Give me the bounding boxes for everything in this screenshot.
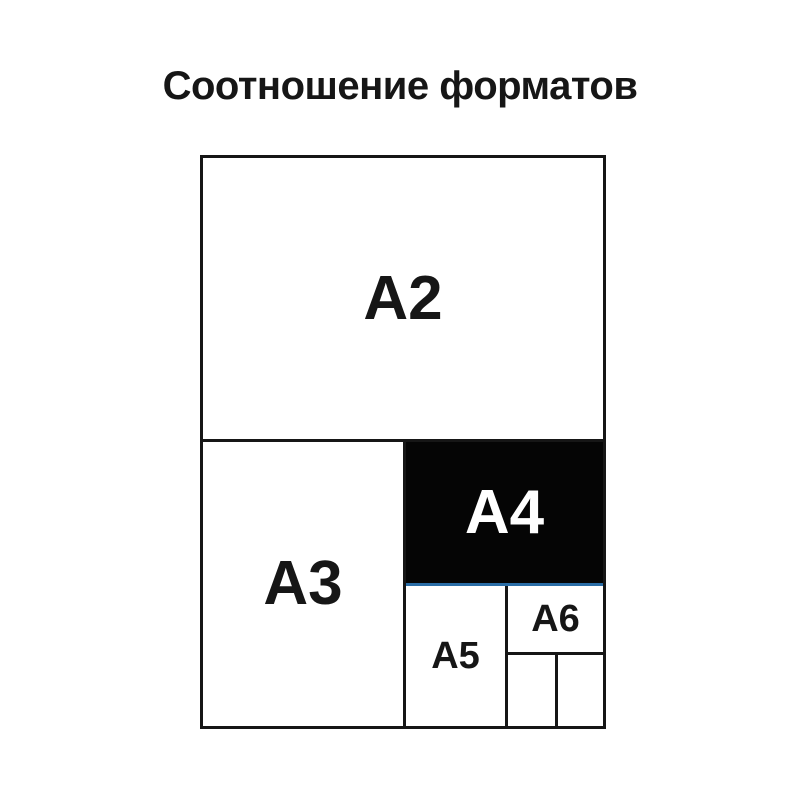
smallest-formats-region: [508, 655, 603, 726]
a6-column-region: A6: [508, 586, 603, 726]
format-cell-a4-highlighted: A4: [406, 442, 603, 586]
format-cell-a2: A2: [203, 158, 603, 442]
format-cell-a3: A3: [203, 442, 406, 726]
format-label-a4: A4: [465, 482, 544, 544]
format-cell-a5: A5: [406, 586, 508, 726]
format-cell-a6: A6: [508, 586, 603, 655]
paper-format-diagram: A2 A3 A4 A5 A6: [200, 155, 606, 729]
format-cell-small-left: [508, 655, 558, 726]
right-quarter-region: A4 A5 A6: [406, 442, 603, 726]
format-label-a2: A2: [363, 268, 442, 330]
bottom-half-region: A3 A4 A5 A6: [203, 442, 603, 726]
small-formats-region: A5 A6: [406, 586, 603, 726]
page-title: Соотношение форматов: [0, 64, 800, 109]
format-label-a5: A5: [431, 637, 480, 675]
format-cell-small-right: [558, 655, 603, 726]
format-label-a6: A6: [531, 600, 580, 638]
format-label-a3: A3: [263, 553, 342, 615]
